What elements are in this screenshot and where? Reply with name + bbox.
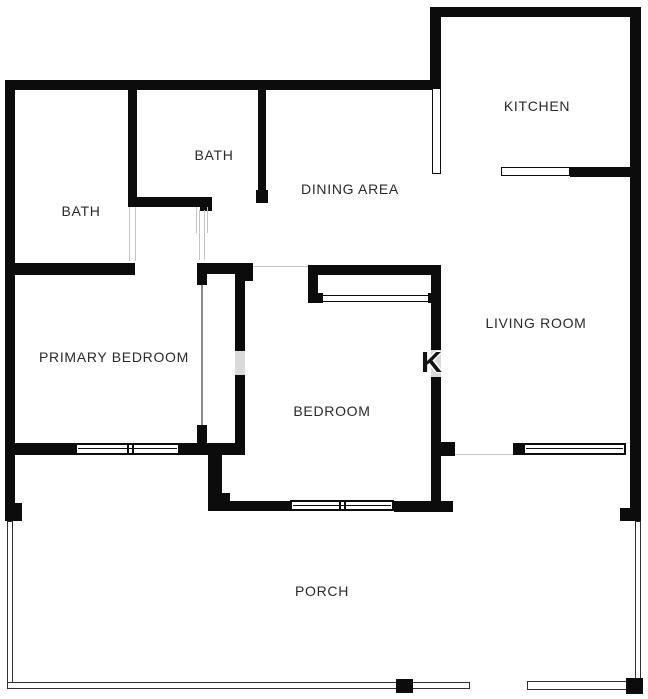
wall-right-end-cap xyxy=(620,508,641,521)
primary-bedroom-window xyxy=(75,443,180,455)
wall-bedroom-top xyxy=(308,265,441,275)
porch-railing-left xyxy=(7,521,13,688)
living-room-window xyxy=(523,443,626,455)
floor-plan: K KITCHEN BATH BATH DINING AREA LIVING R… xyxy=(0,0,648,699)
kitchen-pass-through xyxy=(501,167,570,176)
door-jamb-line xyxy=(196,207,197,233)
porch-post xyxy=(626,678,643,694)
wall-living-window-cap xyxy=(513,443,523,455)
room-label-porch: PORCH xyxy=(295,583,349,599)
wall-bedroom-bottom-left xyxy=(222,501,290,511)
wall-top-main xyxy=(5,80,431,90)
porch-post xyxy=(396,679,413,693)
room-label-bath-lower: BATH xyxy=(61,203,100,219)
closet-sliding-door xyxy=(323,295,428,302)
wall-kitchen-top xyxy=(430,7,641,17)
porch-threshold-line xyxy=(455,454,513,455)
kitchen-half-wall xyxy=(432,88,441,174)
wall-hall-top-stub xyxy=(245,274,253,281)
room-label-primary-bedroom: PRIMARY BEDROOM xyxy=(39,349,189,365)
window-divider xyxy=(339,502,346,509)
door-jamb-line xyxy=(207,207,208,233)
door-jamb-line xyxy=(199,210,200,260)
watermark-patch xyxy=(233,351,247,375)
wall-bath-bottom-stub xyxy=(200,197,212,211)
room-label-living-room: LIVING ROOM xyxy=(485,315,586,331)
wall-kitchen-bottom xyxy=(570,167,634,177)
watermark-glyph: K xyxy=(421,349,442,378)
closet-opening-line xyxy=(201,285,203,425)
bedroom-entry-line xyxy=(253,266,308,267)
wall-left-end-cap xyxy=(5,503,22,521)
porch-railing-right xyxy=(635,521,641,694)
room-label-bedroom: BEDROOM xyxy=(293,403,370,419)
closet-jamb-left xyxy=(315,293,323,303)
wall-kitchen-left xyxy=(430,7,441,90)
wall-primary-top xyxy=(10,263,135,275)
door-jamb-line xyxy=(204,210,205,260)
wall-left xyxy=(5,80,15,503)
wall-bath-right-cap xyxy=(256,190,268,203)
wall-bedroom-bottom-right xyxy=(394,501,453,512)
room-label-kitchen: KITCHEN xyxy=(504,98,570,114)
wall-bath-right xyxy=(258,88,266,190)
bedroom-window xyxy=(290,500,394,511)
wall-right xyxy=(630,7,641,508)
wall-hall-west-upper xyxy=(197,263,207,285)
wall-between-baths xyxy=(128,88,137,207)
door-jamb-line xyxy=(129,207,130,261)
room-label-dining-area: DINING AREA xyxy=(301,181,399,197)
wall-bedroom-right xyxy=(431,265,441,509)
room-label-bath-upper: BATH xyxy=(194,147,233,163)
wall-primary-bottom-left xyxy=(15,443,75,455)
wall-bedroom-right-cap xyxy=(441,442,455,456)
door-jamb-line xyxy=(135,207,136,261)
window-divider xyxy=(127,445,134,453)
